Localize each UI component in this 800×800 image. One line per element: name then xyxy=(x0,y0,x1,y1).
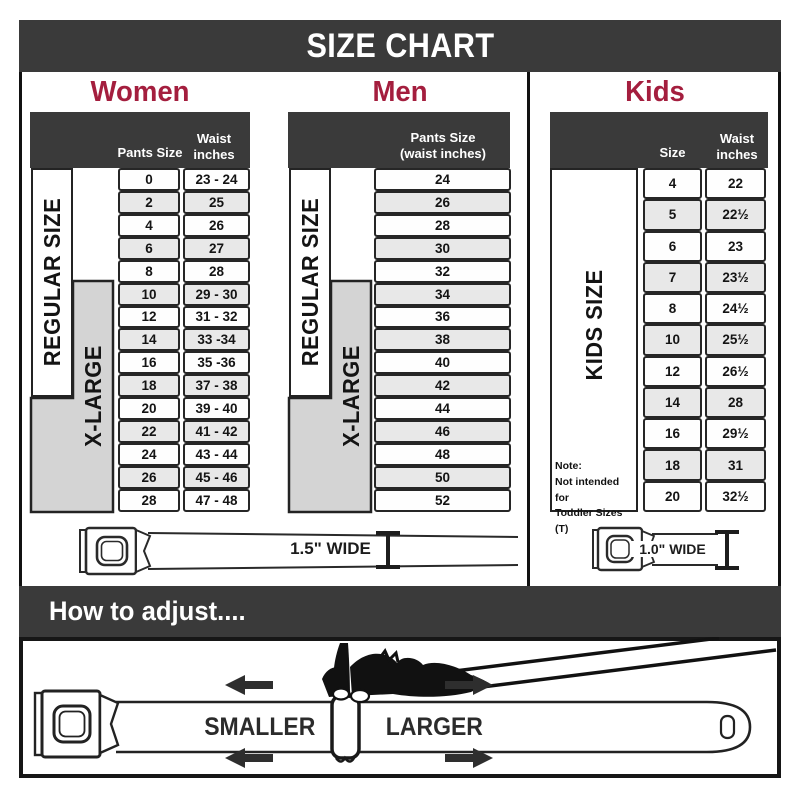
table-cell: 31 xyxy=(705,449,766,480)
table-cell: 46 xyxy=(374,420,511,443)
table-row: 522½ xyxy=(643,199,766,230)
kids-table: 422522½623723½824½1025½1226½14281629½183… xyxy=(643,168,766,512)
table-row: 44 xyxy=(374,397,511,420)
table-cell: 26 xyxy=(183,214,250,237)
table-row: 1629½ xyxy=(643,418,766,449)
kids-waist-header: Waist inches xyxy=(707,131,767,164)
men-waist-inches-header: (waist inches) xyxy=(378,146,508,162)
table-cell: 8 xyxy=(118,260,180,283)
table-cell: 22 xyxy=(118,420,180,443)
table-row: 426 xyxy=(118,214,250,237)
table-row: 2039 - 40 xyxy=(118,397,250,420)
table-cell: 23 xyxy=(705,231,766,262)
table-cell: 23½ xyxy=(705,262,766,293)
table-cell: 24 xyxy=(374,168,511,191)
table-cell: 25 xyxy=(183,191,250,214)
men-regular-size-label: REGULAR SIZE xyxy=(295,178,325,387)
table-cell: 26 xyxy=(118,466,180,489)
women-pants-size-header: Pants Size xyxy=(116,145,184,161)
table-cell: 34 xyxy=(374,283,511,306)
table-cell: 7 xyxy=(643,262,702,293)
table-cell: 28 xyxy=(374,214,511,237)
table-row: 24 xyxy=(374,168,511,191)
table-cell: 18 xyxy=(118,374,180,397)
table-cell: 16 xyxy=(643,418,702,449)
table-cell: 32½ xyxy=(705,481,766,512)
adjust-belt-illustration xyxy=(19,637,781,778)
table-row: 32 xyxy=(374,260,511,283)
women-section-title: Women xyxy=(45,76,235,109)
table-row: 723½ xyxy=(643,262,766,293)
table-row: 52 xyxy=(374,489,511,512)
kids-table-header: Size Waist inches xyxy=(550,112,768,168)
adjust-section-header: How to adjust.... xyxy=(19,586,781,637)
table-row: 1433 -34 xyxy=(118,328,250,351)
table-cell: 2 xyxy=(118,191,180,214)
table-row: 42 xyxy=(374,374,511,397)
table-cell: 16 xyxy=(118,351,180,374)
table-cell: 14 xyxy=(118,328,180,351)
table-cell: 33 -34 xyxy=(183,328,250,351)
men-pants-size-header: Pants Size xyxy=(378,130,508,146)
size-chart-infographic: SIZE CHART Women Men Kids Pants Size Wai… xyxy=(0,0,800,800)
kids-size-header: Size xyxy=(645,145,700,161)
kids-note-title: Note: xyxy=(555,459,635,475)
frame-right-border xyxy=(778,72,781,586)
table-row: 1231 - 32 xyxy=(118,306,250,329)
table-cell: 20 xyxy=(643,481,702,512)
table-cell: 26 xyxy=(374,191,511,214)
men-xlarge-label: X-LARGE xyxy=(336,301,366,491)
adjust-title: How to adjust.... xyxy=(49,596,246,627)
table-cell: 52 xyxy=(374,489,511,512)
title-bar: SIZE CHART xyxy=(19,20,781,72)
women-xlarge-label: X-LARGE xyxy=(78,301,108,491)
table-row: 2443 - 44 xyxy=(118,443,250,466)
adult-belt-width-label: 1.5" WIDE xyxy=(283,539,378,559)
arrow-left-top-icon xyxy=(225,675,273,695)
table-cell: 35 -36 xyxy=(183,351,250,374)
table-row: 1837 - 38 xyxy=(118,374,250,397)
table-cell: 29 - 30 xyxy=(183,283,250,306)
table-cell: 10 xyxy=(643,324,702,355)
table-cell: 28 xyxy=(705,387,766,418)
table-cell: 26½ xyxy=(705,356,766,387)
table-cell: 10 xyxy=(118,283,180,306)
table-cell: 30 xyxy=(374,237,511,260)
hand-illustration xyxy=(322,638,776,702)
table-row: 30 xyxy=(374,237,511,260)
table-cell: 28 xyxy=(183,260,250,283)
table-row: 1025½ xyxy=(643,324,766,355)
kids-size-label: KIDS SIZE xyxy=(579,202,609,449)
kids-belt-width-label: 1.0" WIDE xyxy=(630,541,715,557)
table-row: 38 xyxy=(374,328,511,351)
men-table: 242628303234363840424446485052 xyxy=(374,168,511,512)
table-cell: 41 - 42 xyxy=(183,420,250,443)
women-waist-header: Waist inches xyxy=(184,131,244,164)
table-cell: 32 xyxy=(374,260,511,283)
women-table: 023 - 242254266278281029 - 301231 - 3214… xyxy=(118,168,250,512)
table-row: 2032½ xyxy=(643,481,766,512)
table-cell: 50 xyxy=(374,466,511,489)
table-cell: 24 xyxy=(118,443,180,466)
table-row: 1029 - 30 xyxy=(118,283,250,306)
table-cell: 45 - 46 xyxy=(183,466,250,489)
belt-tip-slot xyxy=(721,716,734,738)
table-row: 48 xyxy=(374,443,511,466)
table-row: 1226½ xyxy=(643,356,766,387)
table-row: 627 xyxy=(118,237,250,260)
men-section-title: Men xyxy=(305,76,495,109)
table-cell: 27 xyxy=(183,237,250,260)
women-table-header: Pants Size Waist inches xyxy=(30,112,250,168)
table-row: 50 xyxy=(374,466,511,489)
page-title: SIZE CHART xyxy=(306,27,494,66)
table-row: 824½ xyxy=(643,293,766,324)
table-row: 2645 - 46 xyxy=(118,466,250,489)
table-cell: 47 - 48 xyxy=(183,489,250,512)
table-row: 40 xyxy=(374,351,511,374)
table-row: 26 xyxy=(374,191,511,214)
kids-section-divider xyxy=(527,72,530,586)
table-cell: 4 xyxy=(643,168,702,199)
smaller-label: SMALLER xyxy=(204,713,301,742)
table-row: 1428 xyxy=(643,387,766,418)
table-cell: 8 xyxy=(643,293,702,324)
table-row: 023 - 24 xyxy=(118,168,250,191)
table-cell: 31 - 32 xyxy=(183,306,250,329)
table-row: 1635 -36 xyxy=(118,351,250,374)
table-cell: 12 xyxy=(118,306,180,329)
adult-width-measure-icon xyxy=(376,533,400,567)
larger-label: LARGER xyxy=(386,713,473,742)
table-row: 2241 - 42 xyxy=(118,420,250,443)
table-cell: 44 xyxy=(374,397,511,420)
table-cell: 18 xyxy=(643,449,702,480)
table-cell: 23 - 24 xyxy=(183,168,250,191)
women-regular-size-label: REGULAR SIZE xyxy=(37,178,67,387)
table-row: 36 xyxy=(374,306,511,329)
table-cell: 20 xyxy=(118,397,180,420)
table-row: 46 xyxy=(374,420,511,443)
table-row: 828 xyxy=(118,260,250,283)
table-cell: 36 xyxy=(374,306,511,329)
table-cell: 22½ xyxy=(705,199,766,230)
belt-slider xyxy=(332,696,359,762)
table-cell: 0 xyxy=(118,168,180,191)
kids-note-line1: Not intended for xyxy=(555,475,635,507)
table-cell: 4 xyxy=(118,214,180,237)
table-cell: 40 xyxy=(374,351,511,374)
table-row: 422 xyxy=(643,168,766,199)
table-cell: 14 xyxy=(643,387,702,418)
table-row: 34 xyxy=(374,283,511,306)
frame-left-border xyxy=(19,72,22,586)
table-row: 2847 - 48 xyxy=(118,489,250,512)
table-row: 225 xyxy=(118,191,250,214)
table-cell: 39 - 40 xyxy=(183,397,250,420)
table-cell: 29½ xyxy=(705,418,766,449)
table-row: 1831 xyxy=(643,449,766,480)
table-cell: 37 - 38 xyxy=(183,374,250,397)
table-cell: 28 xyxy=(118,489,180,512)
table-cell: 25½ xyxy=(705,324,766,355)
men-table-header: Pants Size (waist inches) xyxy=(288,112,510,168)
table-row: 623 xyxy=(643,231,766,262)
kids-width-measure-icon xyxy=(715,532,739,568)
table-cell: 22 xyxy=(705,168,766,199)
kids-section-title: Kids xyxy=(560,76,750,109)
table-cell: 38 xyxy=(374,328,511,351)
table-cell: 12 xyxy=(643,356,702,387)
table-cell: 6 xyxy=(643,231,702,262)
table-cell: 5 xyxy=(643,199,702,230)
table-row: 28 xyxy=(374,214,511,237)
table-cell: 42 xyxy=(374,374,511,397)
table-cell: 43 - 44 xyxy=(183,443,250,466)
table-cell: 48 xyxy=(374,443,511,466)
table-cell: 6 xyxy=(118,237,180,260)
table-cell: 24½ xyxy=(705,293,766,324)
